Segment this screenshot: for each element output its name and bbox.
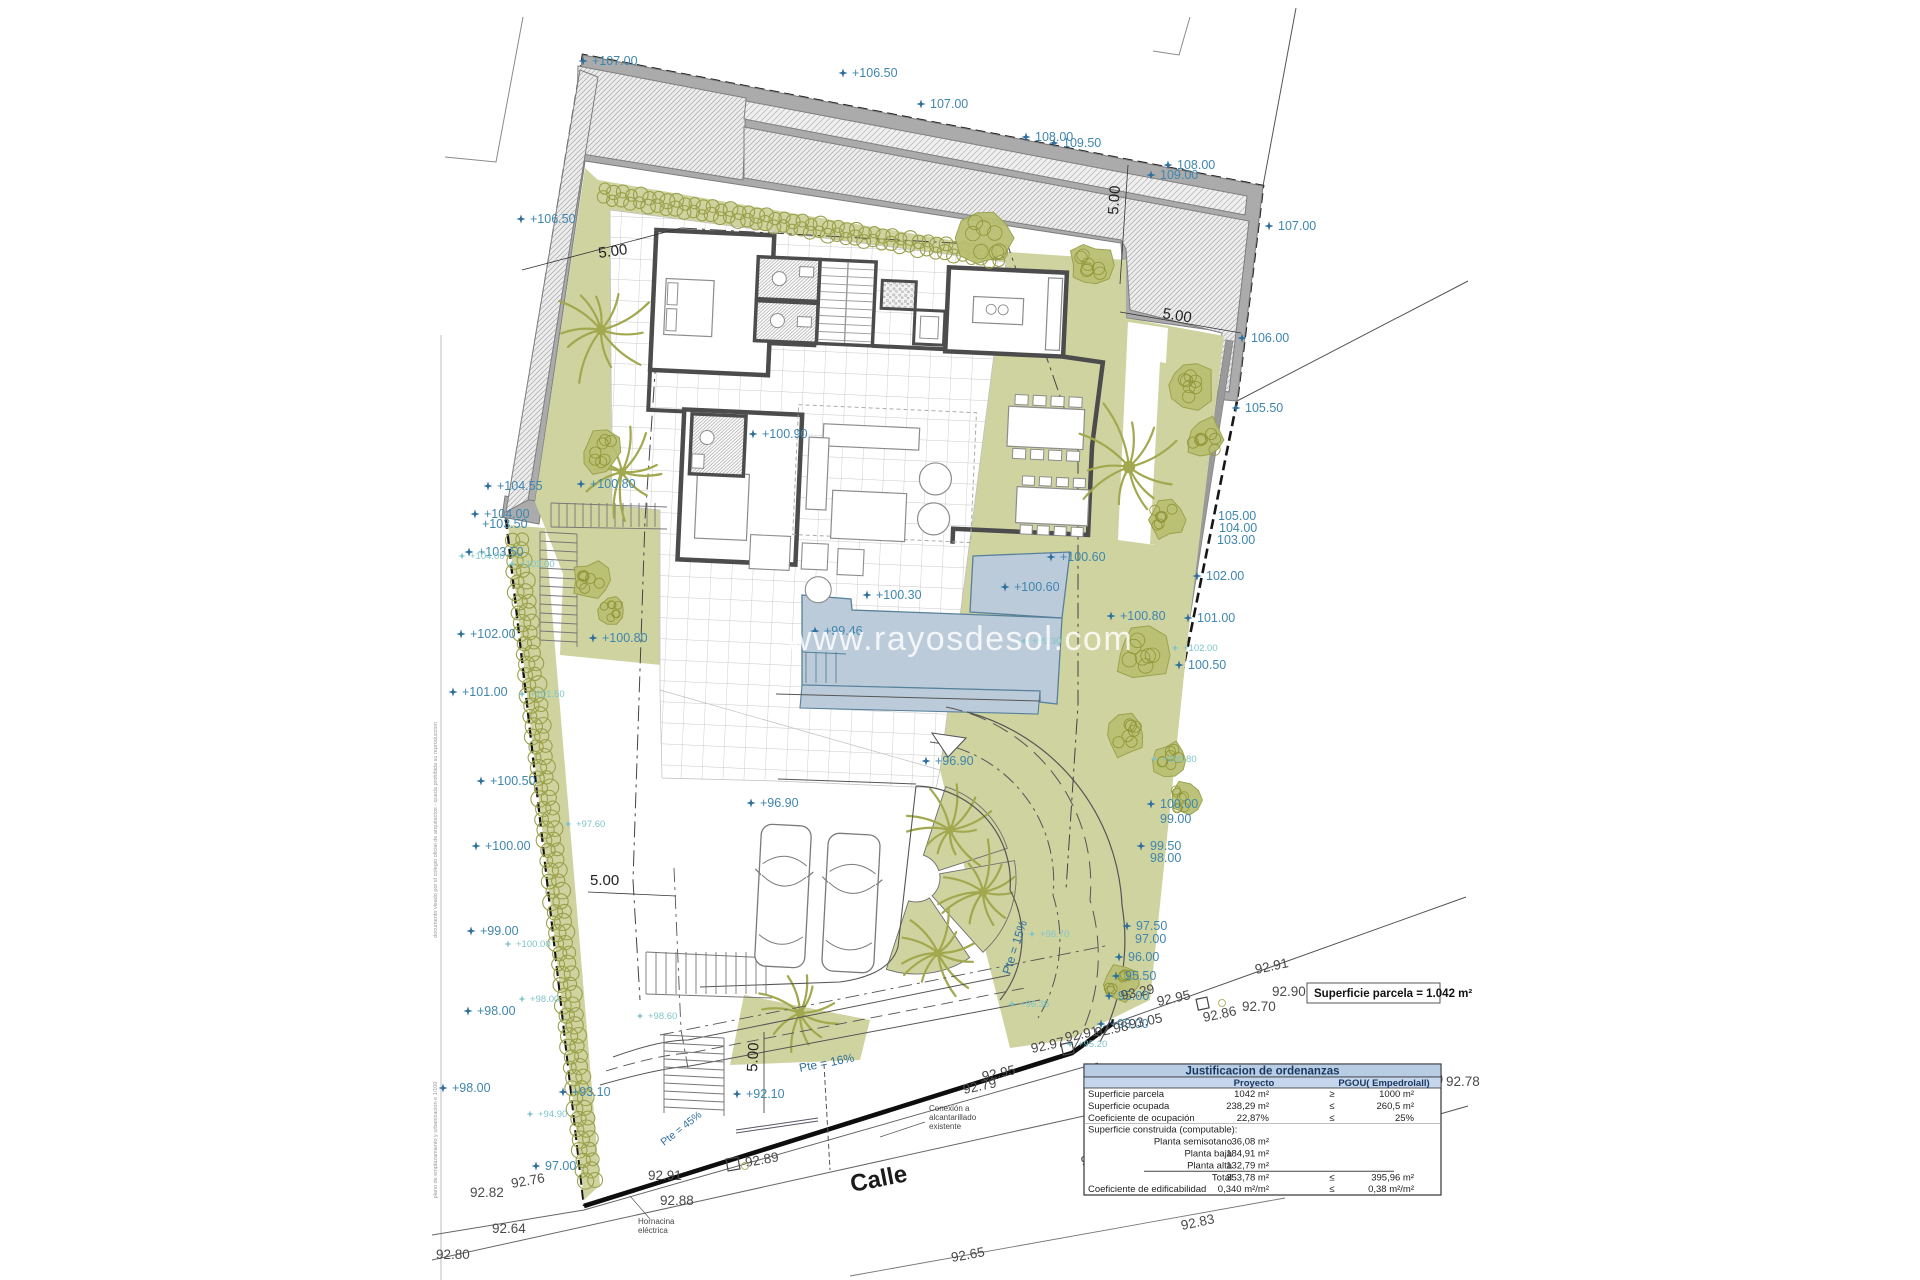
svg-text:260,5 m²: 260,5 m² xyxy=(1377,1101,1415,1112)
svg-text:92.78: 92.78 xyxy=(1446,1074,1480,1089)
svg-text:≤: ≤ xyxy=(1329,1184,1334,1195)
svg-text:92.82: 92.82 xyxy=(470,1185,504,1200)
svg-text:5.00: 5.00 xyxy=(590,872,619,889)
svg-text:+102.00: +102.00 xyxy=(1183,643,1218,654)
svg-text:≤: ≤ xyxy=(1329,1101,1334,1112)
svg-text:www.rayosdesol.com: www.rayosdesol.com xyxy=(786,620,1133,658)
svg-text:92.80: 92.80 xyxy=(436,1247,470,1262)
svg-text:98.00: 98.00 xyxy=(1150,851,1181,865)
svg-text:+96.90: +96.90 xyxy=(760,796,799,810)
svg-text:Proyecto: Proyecto xyxy=(1234,1078,1275,1089)
svg-text:Coeficiente de ocupación: Coeficiente de ocupación xyxy=(1088,1113,1195,1124)
svg-text:Superficie parcela: Superficie parcela xyxy=(1088,1089,1165,1100)
svg-text:+103.00: +103.00 xyxy=(520,559,555,570)
svg-text:+100.30: +100.30 xyxy=(876,588,922,602)
svg-text:92.91: 92.91 xyxy=(648,1168,682,1183)
svg-text:Justificacion de ordenanzas: Justificacion de ordenanzas xyxy=(1185,1066,1339,1078)
svg-text:97.50: 97.50 xyxy=(1136,919,1167,933)
svg-text:Coeficiente de edificabilidad: Coeficiente de edificabilidad xyxy=(1088,1184,1206,1195)
svg-text:97.00: 97.00 xyxy=(545,1159,576,1173)
svg-text:107.00: 107.00 xyxy=(930,97,968,111)
svg-text:100.50: 100.50 xyxy=(1188,658,1226,672)
svg-text:108.00: 108.00 xyxy=(1177,158,1215,172)
svg-text:353,78 m²: 353,78 m² xyxy=(1226,1172,1269,1183)
svg-text:+100.80: +100.80 xyxy=(602,631,648,645)
svg-text:5.00: 5.00 xyxy=(1105,185,1124,215)
svg-text:plano de emplazamiento y urban: plano de emplazamiento y urbanizacion e … xyxy=(433,1082,439,1199)
svg-text:96.00: 96.00 xyxy=(1128,950,1159,964)
svg-text:238,29 m²: 238,29 m² xyxy=(1226,1101,1269,1112)
svg-text:≥: ≥ xyxy=(1329,1089,1334,1100)
svg-text:+92.10: +92.10 xyxy=(746,1087,785,1101)
svg-text:1042 m²: 1042 m² xyxy=(1234,1089,1269,1100)
svg-text:101.00: 101.00 xyxy=(1197,611,1235,625)
svg-text:105.50: 105.50 xyxy=(1245,401,1283,415)
svg-text:+100.60: +100.60 xyxy=(1014,580,1060,594)
svg-text:109.50: 109.50 xyxy=(1063,136,1101,150)
svg-text:+99.00: +99.00 xyxy=(480,924,519,938)
svg-text:+106.50: +106.50 xyxy=(852,66,898,80)
svg-text:36,08 m²: 36,08 m² xyxy=(1232,1137,1270,1148)
svg-text:395,96 m²: 395,96 m² xyxy=(1371,1172,1414,1183)
svg-text:1000 m²: 1000 m² xyxy=(1379,1089,1414,1100)
svg-text:documento visado por el colegi: documento visado por el colegio oficial … xyxy=(433,722,439,938)
svg-text:0,38 m²/m²: 0,38 m²/m² xyxy=(1368,1184,1414,1195)
svg-text:Conexión a: Conexión a xyxy=(929,1104,970,1113)
svg-text:PGOU( Empedrolall): PGOU( Empedrolall) xyxy=(1338,1078,1429,1089)
svg-text:+100.80: +100.80 xyxy=(590,477,636,491)
svg-text:+93.10: +93.10 xyxy=(572,1085,611,1099)
svg-text:106.00: 106.00 xyxy=(1251,331,1289,345)
svg-text:Superficie construida (computa: Superficie construida (computable): xyxy=(1088,1125,1237,1136)
svg-text:Superficie ocupada: Superficie ocupada xyxy=(1088,1101,1170,1112)
svg-text:+104.55: +104.55 xyxy=(497,479,543,493)
svg-text:+101.50: +101.50 xyxy=(530,689,565,700)
svg-text:Hornacina: Hornacina xyxy=(638,1217,675,1226)
svg-text:Planta semisotano: Planta semisotano xyxy=(1154,1137,1232,1148)
svg-text:+96.70: +96.70 xyxy=(1040,929,1069,940)
svg-text:+94.90: +94.90 xyxy=(538,1109,567,1120)
svg-text:alcantarillado: alcantarillado xyxy=(929,1113,977,1122)
svg-text:100.00: 100.00 xyxy=(1160,797,1198,811)
svg-text:92.88: 92.88 xyxy=(660,1193,694,1208)
svg-text:107.00: 107.00 xyxy=(1278,219,1316,233)
svg-text:184,91 m²: 184,91 m² xyxy=(1226,1149,1269,1160)
svg-text:+101.00: +101.00 xyxy=(462,685,508,699)
svg-text:92.64: 92.64 xyxy=(492,1221,526,1236)
svg-text:5.00: 5.00 xyxy=(744,1042,763,1072)
svg-text:+107.00: +107.00 xyxy=(592,54,638,68)
svg-text:+98.00: +98.00 xyxy=(530,994,559,1005)
svg-text:92.90: 92.90 xyxy=(1272,984,1306,999)
svg-text:+96.35: +96.35 xyxy=(1020,999,1049,1010)
svg-text:102.00: 102.00 xyxy=(1206,569,1244,583)
svg-text:+96.90: +96.90 xyxy=(935,754,974,768)
svg-text:+106.50: +106.50 xyxy=(530,212,576,226)
svg-text:+100.00: +100.00 xyxy=(485,839,531,853)
svg-text:+103.50: +103.50 xyxy=(482,517,528,531)
svg-text:existente: existente xyxy=(929,1122,962,1131)
svg-text:+100.90: +100.90 xyxy=(762,427,808,441)
svg-text:25%: 25% xyxy=(1395,1113,1415,1124)
svg-text:+98.00: +98.00 xyxy=(452,1081,491,1095)
svg-text:+97.60: +97.60 xyxy=(576,819,605,830)
svg-text:0,340 m²/m²: 0,340 m²/m² xyxy=(1218,1184,1269,1195)
svg-text:≤: ≤ xyxy=(1329,1172,1334,1183)
svg-text:+98.00: +98.00 xyxy=(477,1004,516,1018)
svg-text:+104.00: +104.00 xyxy=(470,551,505,562)
svg-text:22,87%: 22,87% xyxy=(1237,1113,1270,1124)
svg-text:+100.60: +100.60 xyxy=(1060,550,1106,564)
svg-text:Superficie parcela = 1.042 m²: Superficie parcela = 1.042 m² xyxy=(1314,988,1472,1000)
svg-text:103.00: 103.00 xyxy=(1217,533,1255,547)
svg-text:+100.50: +100.50 xyxy=(490,774,536,788)
svg-text:+102.00: +102.00 xyxy=(470,627,516,641)
svg-text:+100.80: +100.80 xyxy=(1162,754,1197,765)
svg-text:92.70: 92.70 xyxy=(1242,999,1276,1014)
svg-text:132,79 m²: 132,79 m² xyxy=(1226,1160,1269,1171)
svg-text:97.00: 97.00 xyxy=(1135,932,1166,946)
svg-text:+98.60: +98.60 xyxy=(648,1011,677,1022)
svg-text:99.00: 99.00 xyxy=(1160,812,1191,826)
svg-text:+100.00: +100.00 xyxy=(516,939,551,950)
svg-text:eléctrica: eléctrica xyxy=(638,1226,668,1235)
svg-text:≤: ≤ xyxy=(1329,1113,1334,1124)
